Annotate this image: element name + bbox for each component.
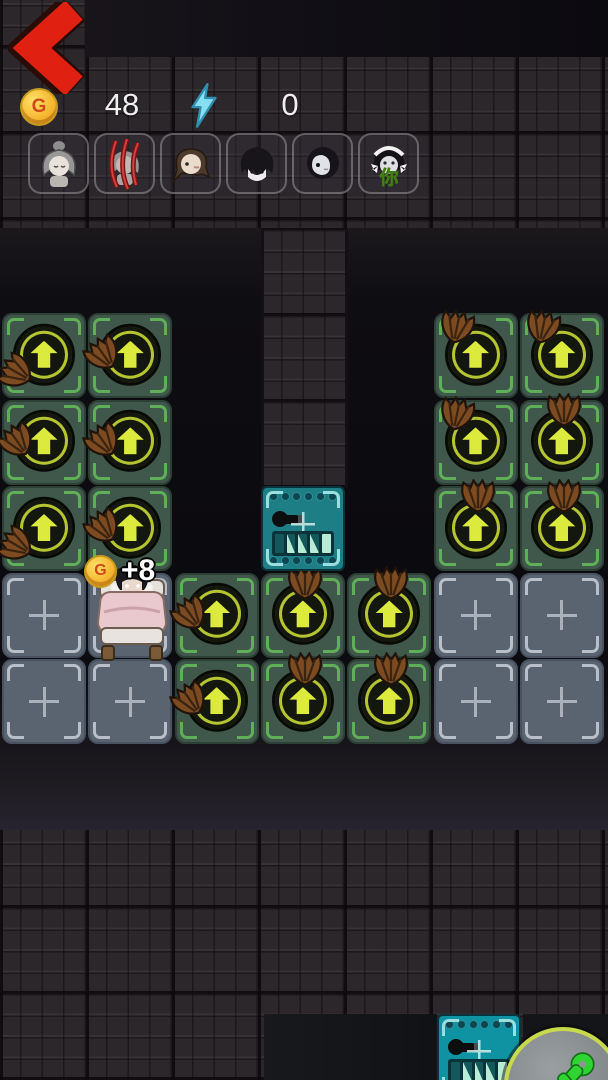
green-text-overlay: 你 bbox=[378, 166, 398, 189]
tile-corner-bracket bbox=[64, 491, 81, 508]
coin-gain-popup: G +8 bbox=[84, 554, 155, 588]
plus-placeholder-icon bbox=[461, 600, 491, 630]
tile-corner-bracket bbox=[582, 463, 599, 480]
tile-corner-bracket bbox=[150, 722, 167, 739]
upgrade-arrow-tile[interactable] bbox=[520, 486, 604, 571]
moth-decoration-icon bbox=[458, 479, 498, 513]
moth-decoration-icon bbox=[433, 393, 479, 435]
upgrade-arrow-tile[interactable] bbox=[175, 659, 259, 744]
tile-corner-bracket bbox=[496, 664, 513, 681]
tile-corner-bracket bbox=[582, 636, 599, 653]
tile-corner-bracket bbox=[582, 722, 599, 739]
upgrade-arrow-tile[interactable] bbox=[2, 313, 86, 398]
tile-corner-bracket bbox=[323, 664, 340, 681]
moth-decoration-icon bbox=[371, 652, 411, 686]
coin-currency-icon: G bbox=[20, 88, 58, 126]
tile-corner-bracket bbox=[439, 636, 456, 653]
tile-corner-bracket bbox=[64, 664, 81, 681]
charger-machine-tile[interactable] bbox=[261, 486, 345, 571]
tile-corner-bracket bbox=[439, 549, 456, 566]
tile-corner-bracket bbox=[266, 722, 283, 739]
energy-bolt-icon bbox=[188, 83, 220, 129]
coin-letter: G bbox=[94, 562, 106, 580]
tile-corner-bracket bbox=[496, 405, 513, 422]
tile-corner-bracket bbox=[7, 491, 24, 508]
party-slot-3[interactable] bbox=[160, 133, 221, 194]
upgrade-arrow-tile[interactable] bbox=[261, 659, 345, 744]
rivet bbox=[292, 556, 301, 565]
wrench-and-gear-icon bbox=[520, 1043, 606, 1080]
tile-corner-bracket bbox=[323, 549, 340, 566]
tile-corner-bracket bbox=[496, 318, 513, 335]
tile-corner-bracket bbox=[64, 722, 81, 739]
tile-corner-bracket bbox=[525, 463, 542, 480]
empty-slot-tile[interactable] bbox=[520, 659, 604, 744]
coin-icon-small: G bbox=[84, 555, 117, 588]
up-arrow-icon bbox=[376, 687, 403, 714]
injured-girl-avatar-icon bbox=[102, 139, 148, 189]
brown-hair-girl-avatar-icon bbox=[168, 139, 214, 189]
up-arrow-icon bbox=[548, 427, 575, 454]
tile-corner-bracket bbox=[409, 722, 426, 739]
tile-corner-bracket bbox=[352, 578, 369, 595]
tile-corner-bracket bbox=[266, 549, 283, 566]
tile-corner-bracket bbox=[496, 491, 513, 508]
tile-corner-bracket bbox=[496, 578, 513, 595]
tile-corner-bracket bbox=[64, 636, 81, 653]
battery-segment-half bbox=[475, 1062, 484, 1080]
tile-corner-bracket bbox=[150, 376, 167, 393]
back-button[interactable] bbox=[8, 2, 92, 94]
rivet bbox=[469, 1020, 478, 1029]
tile-corner-bracket bbox=[323, 491, 340, 508]
battery-segment-half bbox=[486, 1062, 495, 1080]
up-arrow-icon bbox=[289, 601, 316, 628]
tile-corner-bracket bbox=[439, 491, 456, 508]
plus-placeholder-icon bbox=[29, 687, 59, 717]
tile-corner-bracket bbox=[323, 636, 340, 653]
tile-corner-bracket bbox=[525, 722, 542, 739]
up-arrow-icon bbox=[376, 601, 403, 628]
rivet bbox=[304, 492, 313, 501]
coin-count: 48 bbox=[90, 87, 154, 123]
tile-corner-bracket bbox=[323, 722, 340, 739]
tile-corner-bracket bbox=[439, 578, 456, 595]
party-slot-1[interactable] bbox=[28, 133, 89, 194]
upgrade-arrow-tile[interactable] bbox=[88, 313, 172, 398]
tile-corner-bracket bbox=[64, 318, 81, 335]
back-chevron-icon bbox=[8, 2, 92, 94]
tile-corner-bracket bbox=[582, 318, 599, 335]
tile-corner-bracket bbox=[409, 578, 426, 595]
up-arrow-icon bbox=[548, 514, 575, 541]
tile-corner-bracket bbox=[150, 491, 167, 508]
plus-placeholder-icon bbox=[461, 687, 491, 717]
tile-corner-bracket bbox=[7, 578, 24, 595]
moth-decoration-icon bbox=[433, 306, 479, 348]
tile-corner-bracket bbox=[64, 463, 81, 480]
tile-corner-bracket bbox=[439, 376, 456, 393]
grandma-avatar-icon bbox=[36, 139, 82, 189]
tile-corner-bracket bbox=[525, 664, 542, 681]
upgrade-arrow-tile[interactable] bbox=[520, 400, 604, 485]
tile-corner-bracket bbox=[525, 376, 542, 393]
tile-corner-bracket bbox=[93, 722, 110, 739]
tile-corner-bracket bbox=[582, 376, 599, 393]
tile-corner-bracket bbox=[582, 405, 599, 422]
tile-corner-bracket bbox=[496, 636, 513, 653]
tile-corner-bracket bbox=[352, 722, 369, 739]
tile-corner-bracket bbox=[64, 405, 81, 422]
tile-corner-bracket bbox=[93, 664, 110, 681]
tile-corner-bracket bbox=[7, 318, 24, 335]
game-screen: G 48 0 bbox=[0, 0, 608, 1080]
tile-corner-bracket bbox=[409, 636, 426, 653]
tile-corner-bracket bbox=[525, 405, 542, 422]
upgrade-arrow-tile[interactable] bbox=[434, 400, 518, 485]
tile-corner-bracket bbox=[7, 722, 24, 739]
party-slot-4[interactable] bbox=[226, 133, 287, 194]
moth-decoration-icon bbox=[285, 652, 325, 686]
tile-corner-bracket bbox=[525, 549, 542, 566]
moth-decoration-icon bbox=[544, 479, 584, 513]
tile-corner-bracket bbox=[409, 664, 426, 681]
upgrade-arrow-tile[interactable] bbox=[88, 400, 172, 485]
plus-placeholder-icon bbox=[547, 687, 577, 717]
tile-corner-bracket bbox=[525, 491, 542, 508]
headphones-girl-avatar-icon: 你 bbox=[366, 139, 412, 189]
tile-corner-bracket bbox=[352, 636, 369, 653]
tile-corner-bracket bbox=[64, 376, 81, 393]
upgrade-arrow-tile[interactable] bbox=[2, 486, 86, 571]
energy-count: 0 bbox=[258, 87, 322, 123]
plus-placeholder-icon bbox=[115, 687, 145, 717]
tile-corner-bracket bbox=[525, 636, 542, 653]
tile-corner-bracket bbox=[496, 549, 513, 566]
black-bob-girl-avatar-icon bbox=[300, 139, 346, 189]
party-slot-6[interactable]: 你 bbox=[358, 133, 419, 194]
empty-slot-tile[interactable] bbox=[434, 659, 518, 744]
tile-corner-bracket bbox=[237, 722, 254, 739]
tile-corner-bracket bbox=[237, 578, 254, 595]
tile-corner-bracket bbox=[150, 318, 167, 335]
rivet bbox=[304, 556, 313, 565]
moth-decoration-icon bbox=[371, 566, 411, 600]
tile-corner-bracket bbox=[352, 664, 369, 681]
moth-decoration-icon bbox=[520, 306, 566, 348]
up-arrow-icon bbox=[462, 514, 489, 541]
upgrade-arrow-tile[interactable] bbox=[175, 573, 259, 658]
empty-slot-tile[interactable] bbox=[520, 573, 604, 658]
tile-corner-bracket bbox=[237, 664, 254, 681]
tile-corner-bracket bbox=[266, 636, 283, 653]
tile-corner-bracket bbox=[496, 722, 513, 739]
party-slot-2[interactable] bbox=[94, 133, 155, 194]
tile-corner-bracket bbox=[150, 463, 167, 480]
tile-corner-bracket bbox=[442, 1019, 459, 1036]
tile-corner-bracket bbox=[582, 664, 599, 681]
tile-corner-bracket bbox=[64, 549, 81, 566]
party-slot-5[interactable] bbox=[292, 133, 353, 194]
battery-segment-half bbox=[310, 534, 319, 553]
tile-corner-bracket bbox=[582, 491, 599, 508]
empty-slot-tile[interactable] bbox=[2, 573, 86, 658]
upgrade-arrow-tile[interactable] bbox=[347, 573, 431, 658]
empty-slot-tile[interactable] bbox=[88, 659, 172, 744]
tile-corner-bracket bbox=[150, 405, 167, 422]
plus-placeholder-icon bbox=[29, 600, 59, 630]
empty-slot-tile[interactable] bbox=[434, 573, 518, 658]
tile-corner-bracket bbox=[525, 578, 542, 595]
tile-corner-bracket bbox=[582, 549, 599, 566]
rivet bbox=[480, 1020, 489, 1029]
tile-corner-bracket bbox=[266, 664, 283, 681]
upgrade-arrow-tile[interactable] bbox=[434, 486, 518, 571]
dark-messy-hair-avatar-icon bbox=[234, 139, 280, 189]
tile-corner-bracket bbox=[582, 578, 599, 595]
tile-corner-bracket bbox=[7, 664, 24, 681]
plus-placeholder-icon bbox=[547, 600, 577, 630]
upgrade-arrow-tile[interactable] bbox=[520, 313, 604, 398]
upgrade-arrow-tile[interactable] bbox=[261, 573, 345, 658]
tile-corner-bracket bbox=[439, 664, 456, 681]
tile-corner-bracket bbox=[496, 463, 513, 480]
tile-corner-bracket bbox=[266, 578, 283, 595]
battery-segment-half bbox=[463, 1062, 472, 1080]
tile-corner-bracket bbox=[64, 578, 81, 595]
tile-corner-bracket bbox=[496, 376, 513, 393]
tile-corner-bracket bbox=[323, 578, 340, 595]
empty-slot-tile[interactable] bbox=[2, 659, 86, 744]
tile-corner-bracket bbox=[7, 636, 24, 653]
tile-corner-bracket bbox=[439, 722, 456, 739]
coin-gain-amount: +8 bbox=[121, 554, 155, 588]
tile-corner-bracket bbox=[499, 1019, 516, 1036]
tile-corner-bracket bbox=[439, 463, 456, 480]
up-arrow-icon bbox=[289, 687, 316, 714]
upgrade-arrow-tile[interactable] bbox=[434, 313, 518, 398]
battery-segment-half bbox=[287, 534, 296, 553]
moth-decoration-icon bbox=[544, 393, 584, 427]
tile-corner-bracket bbox=[150, 664, 167, 681]
battery-segment-half bbox=[298, 534, 307, 553]
rivet bbox=[292, 492, 301, 501]
tile-corner-bracket bbox=[237, 636, 254, 653]
upgrade-arrow-tile[interactable] bbox=[347, 659, 431, 744]
tile-corner-bracket bbox=[266, 491, 283, 508]
upgrade-arrow-tile[interactable] bbox=[2, 400, 86, 485]
coin-letter: G bbox=[32, 96, 47, 118]
